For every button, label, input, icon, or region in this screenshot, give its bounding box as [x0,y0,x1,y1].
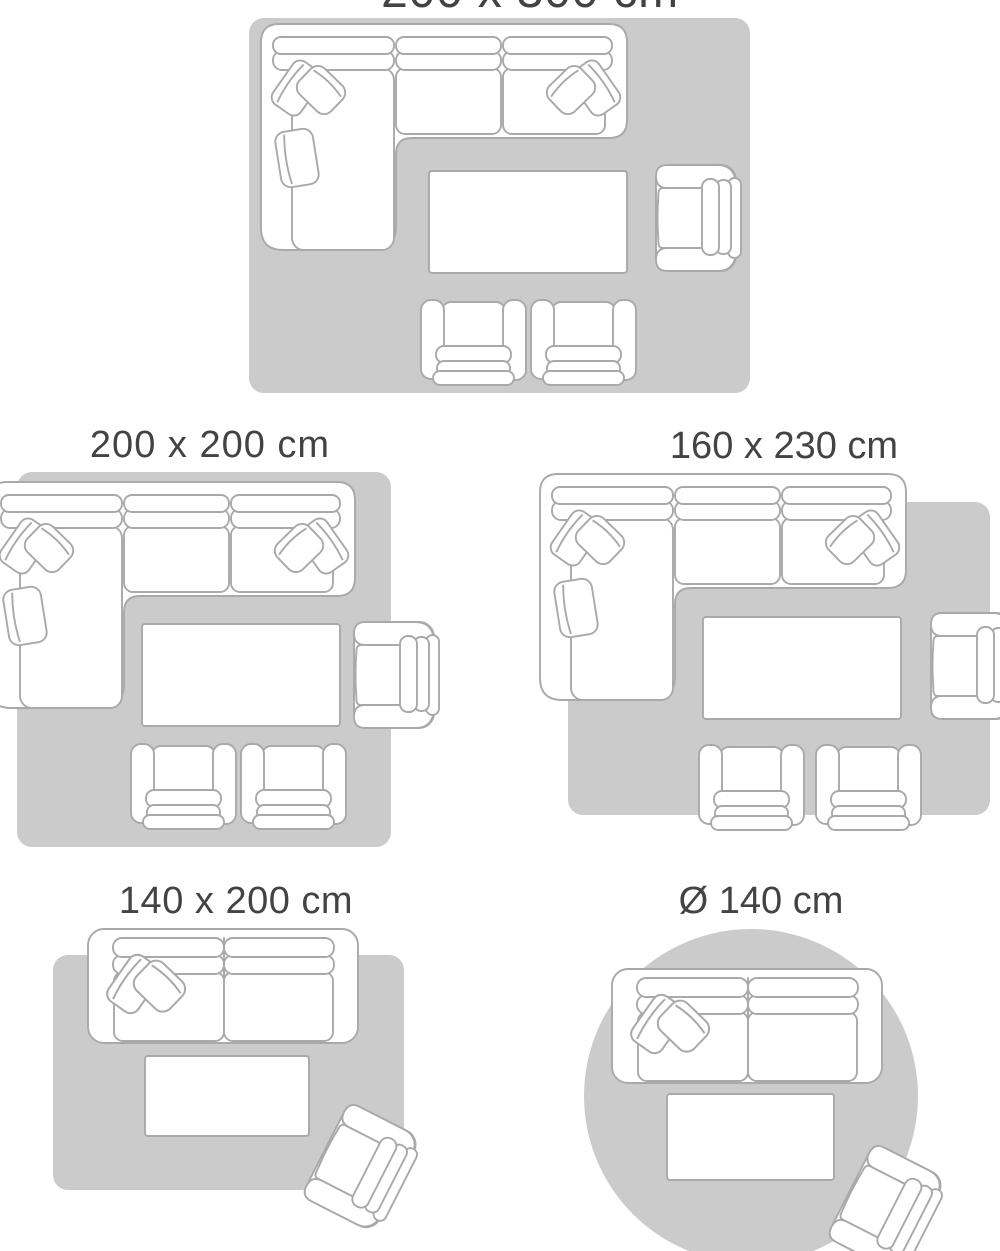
svg-text:Ø 140 cm: Ø 140 cm [679,880,844,922]
svg-text:140 x 200 cm: 140 x 200 cm [119,880,353,922]
svg-text:160 x 230 cm: 160 x 230 cm [670,425,898,467]
svg-text:200 x 300 cm: 200 x 300 cm [381,0,679,18]
svg-text:200 x 200 cm: 200 x 200 cm [90,424,330,466]
